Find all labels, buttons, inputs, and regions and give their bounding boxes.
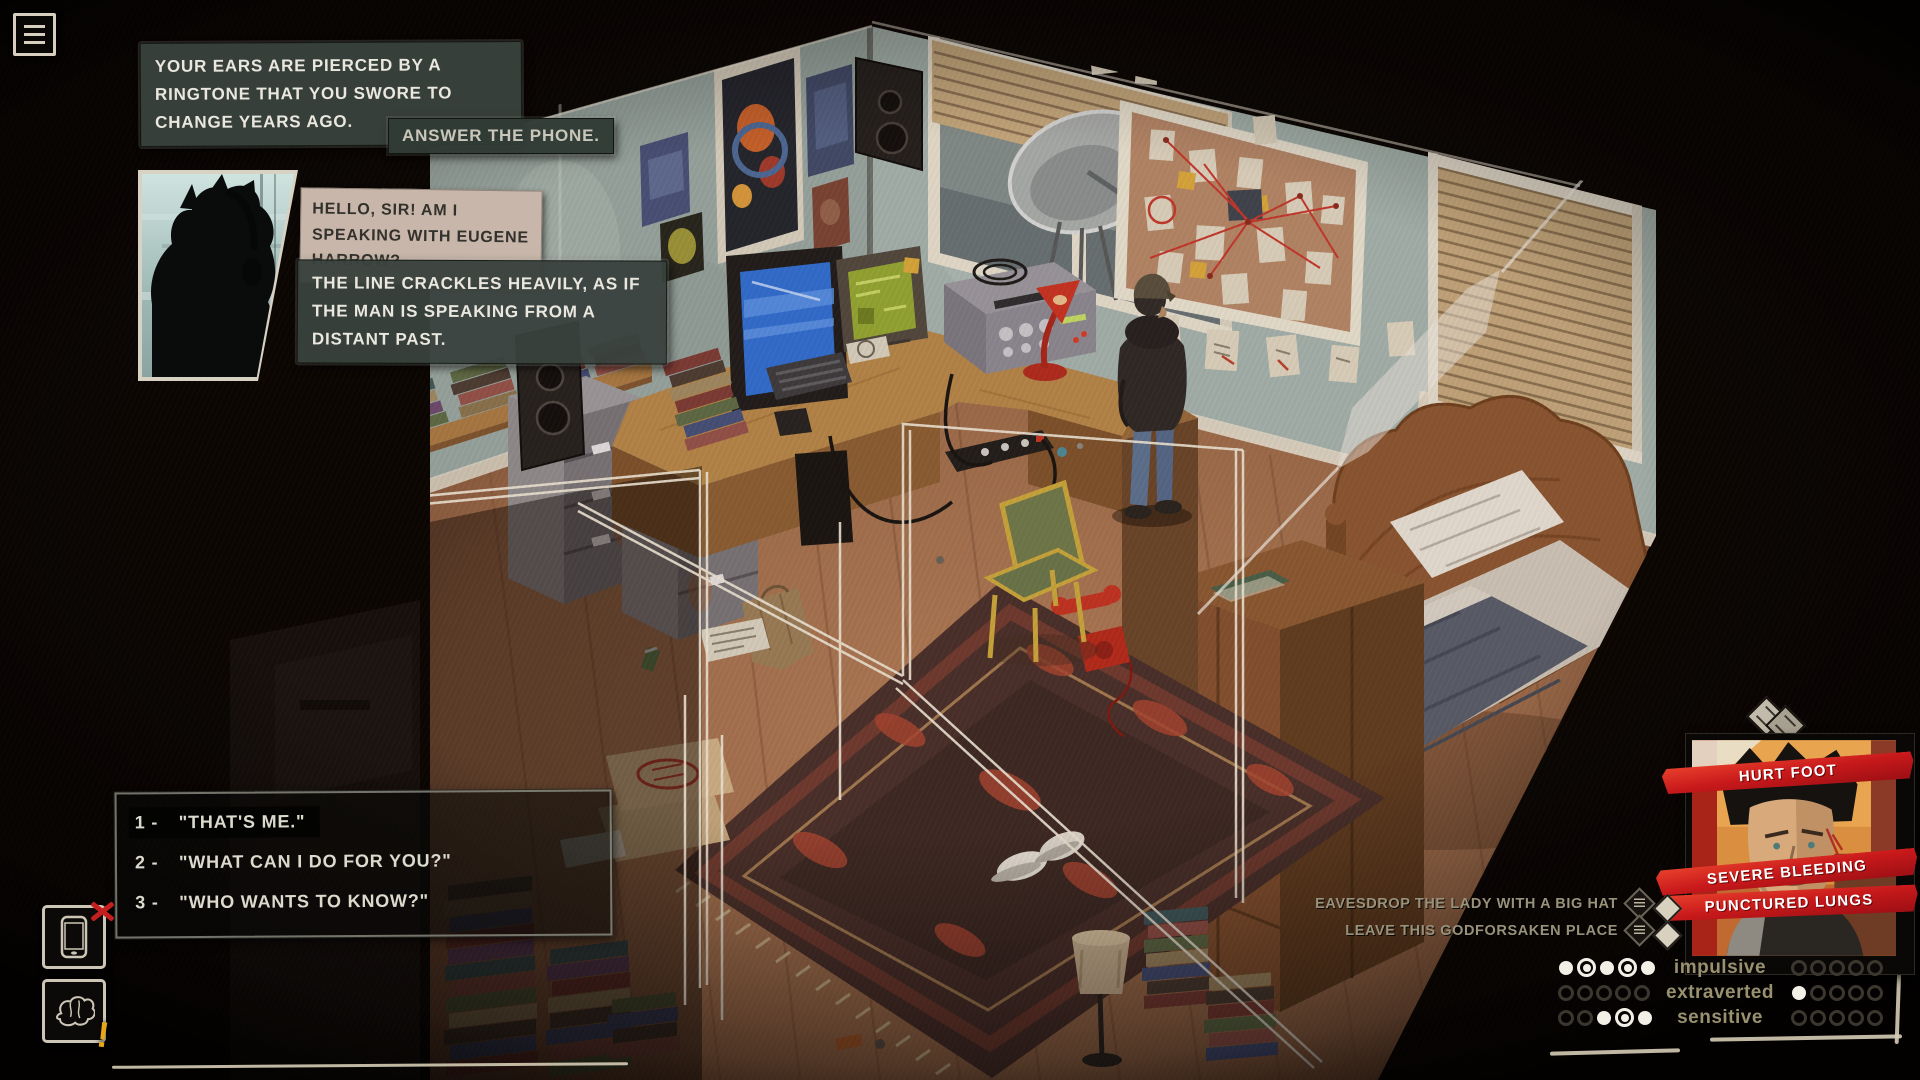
trait-dots-left: [1558, 1008, 1653, 1027]
trait-dot-filled: [1559, 961, 1573, 975]
traits-rows: impulsiveextravertedsensitive: [1558, 955, 1886, 1030]
action-prompt: ANSWER THE PHONE.: [388, 118, 614, 154]
menu-button[interactable]: [13, 13, 56, 56]
phone-icon: [59, 915, 89, 959]
trait-row: sensitive: [1558, 1005, 1886, 1030]
world-action-leave[interactable]: LEAVE THIS GODFORSAKEN PLACE: [1100, 915, 1678, 946]
trait-dot-ring: [1615, 1008, 1634, 1027]
trait-dot-filled: [1597, 1011, 1611, 1025]
trait-row: extraverted: [1558, 980, 1886, 1005]
trait-dot-empty: [1558, 985, 1574, 1001]
phone-tool-button[interactable]: [42, 905, 106, 969]
trait-dot-empty: [1829, 960, 1845, 976]
trait-dot-empty: [1558, 1010, 1574, 1026]
option-text: "WHO WANTS TO KNOW?": [179, 890, 429, 913]
trait-dots-left: [1558, 958, 1653, 977]
trait-dot-empty: [1791, 1010, 1807, 1026]
narration-box-2: THE LINE CRACKLES HEAVILY, AS IF THE MAN…: [297, 259, 667, 364]
trait-label: impulsive: [1653, 957, 1787, 979]
option-text: "THAT'S ME.": [179, 811, 306, 833]
corner-speaker[interactable]: [856, 58, 922, 170]
cutaway-shadow: [430, 466, 702, 1080]
trait-dot-empty: [1577, 1010, 1593, 1026]
note-diamond-icon: [1623, 914, 1656, 947]
trait-dot-empty: [1829, 985, 1845, 1001]
trait-dot-empty: [1810, 960, 1826, 976]
option-number: 1 -: [135, 812, 163, 833]
trait-dot-empty: [1596, 985, 1612, 1001]
mind-tool-button[interactable]: !: [42, 979, 106, 1043]
trait-label: sensitive: [1653, 1007, 1787, 1029]
dialogue-option[interactable]: 1 -"THAT'S ME.": [117, 799, 610, 842]
trait-label: extraverted: [1653, 982, 1787, 1004]
trait-dot-empty: [1791, 960, 1807, 976]
option-number: 2 -: [135, 852, 163, 873]
trait-dot-filled: [1638, 1011, 1652, 1025]
dialogue-options-panel: 1 -"THAT'S ME."2 -"WHAT CAN I DO FOR YOU…: [115, 789, 613, 938]
trait-dot-empty: [1810, 985, 1826, 1001]
trait-dot-empty: [1848, 960, 1864, 976]
trait-dot-empty: [1867, 960, 1883, 976]
trait-dot-ring: [1577, 958, 1596, 977]
trait-dot-empty: [1810, 1010, 1826, 1026]
trait-dot-empty: [1848, 985, 1864, 1001]
trait-dots-left: [1558, 985, 1653, 1001]
world-action-label: EAVESDROP THE LADY WITH A BIG HAT: [1315, 896, 1618, 912]
phone-disabled-x-icon: [89, 898, 115, 924]
trait-dots-right: [1791, 985, 1886, 1001]
option-text: "WHAT CAN I DO FOR YOU?": [179, 850, 452, 873]
trait-dot-empty: [1634, 985, 1650, 1001]
trait-dot-filled: [1792, 986, 1806, 1000]
trait-dot-empty: [1829, 1010, 1845, 1026]
trait-dot-empty: [1848, 1010, 1864, 1026]
marker-diamond-icon: [1653, 921, 1683, 951]
trait-dot-empty: [1577, 985, 1593, 1001]
dialogue-option[interactable]: 3 -"WHO WANTS TO KNOW?": [117, 879, 610, 922]
brain-icon: [53, 993, 95, 1029]
game-screen: YOUR EARS ARE PIERCED BY A RINGTONE THAT…: [0, 0, 1920, 1080]
trait-row: impulsive: [1558, 955, 1886, 980]
trait-dot-filled: [1600, 961, 1614, 975]
trait-dots-right: [1791, 1010, 1886, 1026]
crt-tv[interactable]: [836, 246, 928, 352]
trait-dot-empty: [1615, 985, 1631, 1001]
dialogue-option[interactable]: 2 -"WHAT CAN I DO FOR YOU?": [117, 839, 610, 882]
option-number: 3 -: [135, 892, 163, 913]
world-action-label: LEAVE THIS GODFORSAKEN PLACE: [1345, 923, 1618, 939]
trait-dots-right: [1791, 960, 1886, 976]
trait-dot-empty: [1867, 985, 1883, 1001]
trait-dot-empty: [1867, 1010, 1883, 1026]
trait-dot-ring: [1618, 958, 1637, 977]
